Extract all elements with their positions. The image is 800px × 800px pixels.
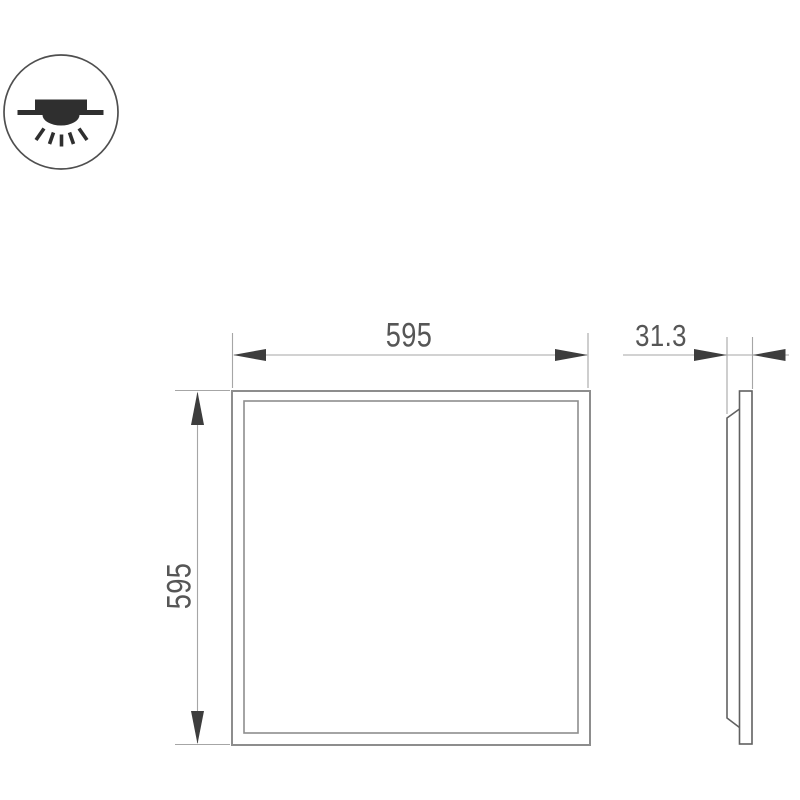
technical-drawing-canvas: 595 595 31.3: [0, 0, 800, 800]
side-panel-face: [727, 409, 740, 728]
light-ray: [79, 129, 87, 141]
front-view: [232, 391, 590, 745]
light-ray: [50, 133, 54, 145]
arrowhead-left: [233, 349, 266, 361]
dimension-lines: [175, 333, 789, 745]
mount-icon: [4, 55, 118, 169]
arrowhead-inward-right: [694, 349, 727, 361]
lamp-dome-shape: [43, 115, 80, 126]
ceiling-line-shape: [18, 110, 104, 115]
arrowhead-inward-left: [753, 349, 786, 361]
arrowhead-right: [555, 349, 588, 361]
light-ray: [70, 133, 74, 145]
panel-dimension-drawing: [0, 0, 800, 800]
panel-outer-edge: [232, 391, 590, 745]
light-rays-icon: [36, 129, 87, 147]
dimension-arrows: [191, 349, 786, 744]
side-frame-edge: [740, 391, 753, 744]
light-ray: [36, 129, 44, 141]
side-depth-dimension-label: 31.3: [635, 318, 687, 354]
arrowhead-down: [191, 711, 204, 744]
front-height-dimension-label: 595: [161, 563, 200, 610]
recessed-housing-shape: [35, 100, 87, 111]
arrowhead-up: [191, 392, 204, 426]
panel-inner-edge: [244, 401, 578, 733]
recessed-ceiling-light-icon: [18, 100, 104, 126]
side-view: [727, 391, 752, 744]
front-width-dimension-label: 595: [386, 317, 433, 356]
